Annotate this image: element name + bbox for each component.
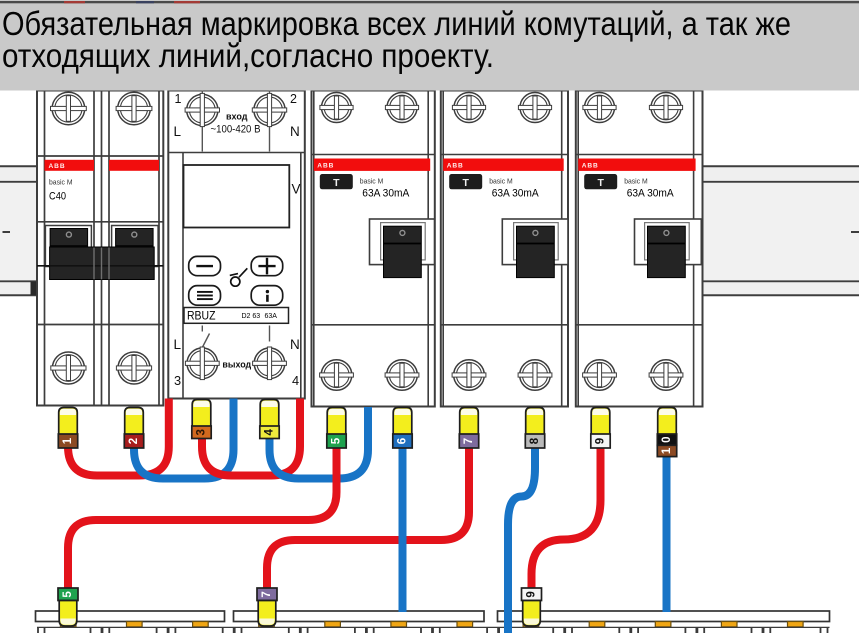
svg-text:L: L [174, 124, 182, 139]
svg-text:63A 30mA: 63A 30mA [492, 187, 540, 199]
svg-text:ABB: ABB [49, 163, 66, 170]
svg-text:2: 2 [128, 438, 140, 444]
svg-text:отходящих линий,согласно проек: отходящих линий,согласно проекту. [2, 37, 494, 74]
svg-text:5: 5 [62, 591, 74, 598]
svg-text:3: 3 [196, 429, 208, 435]
svg-text:63A 30mA: 63A 30mA [362, 187, 410, 199]
svg-text:basic M: basic M [624, 176, 648, 185]
svg-text:1: 1 [175, 92, 182, 106]
svg-text:9: 9 [526, 591, 538, 597]
svg-text:7: 7 [261, 591, 273, 597]
svg-text:выход: выход [222, 359, 251, 369]
svg-text:L: L [174, 337, 182, 352]
svg-text:~100-420 В: ~100-420 В [211, 123, 261, 135]
svg-text:RBUZ: RBUZ [187, 309, 216, 323]
svg-text:basic M: basic M [489, 176, 513, 185]
svg-text:63A 30mA: 63A 30mA [627, 187, 675, 199]
svg-text:63A: 63A [265, 313, 278, 320]
svg-text:0: 0 [661, 436, 673, 442]
svg-text:ABB: ABB [582, 163, 599, 170]
svg-text:3: 3 [174, 373, 181, 388]
svg-text:4: 4 [264, 428, 276, 435]
svg-text:1: 1 [62, 437, 74, 444]
svg-text:basic M: basic M [49, 177, 73, 186]
svg-text:4: 4 [292, 373, 299, 388]
svg-text:1: 1 [661, 447, 673, 454]
svg-text:вход: вход [226, 112, 248, 122]
svg-text:ABB: ABB [317, 163, 334, 170]
svg-text:6: 6 [397, 438, 409, 444]
svg-text:9: 9 [595, 438, 607, 444]
svg-text:basic M: basic M [360, 176, 384, 185]
svg-text:C40: C40 [49, 191, 66, 203]
svg-text:8: 8 [529, 437, 541, 444]
svg-text:N: N [290, 124, 300, 139]
svg-text:V: V [292, 182, 301, 197]
svg-text:2: 2 [290, 92, 297, 106]
svg-text:D2 63: D2 63 [242, 313, 261, 320]
svg-text:T: T [462, 177, 469, 189]
svg-text:7: 7 [463, 438, 475, 444]
svg-text:N: N [290, 337, 300, 352]
svg-text:T: T [333, 177, 340, 189]
svg-text:ABB: ABB [447, 163, 464, 170]
svg-text:T: T [597, 177, 604, 189]
svg-text:5: 5 [331, 437, 343, 444]
